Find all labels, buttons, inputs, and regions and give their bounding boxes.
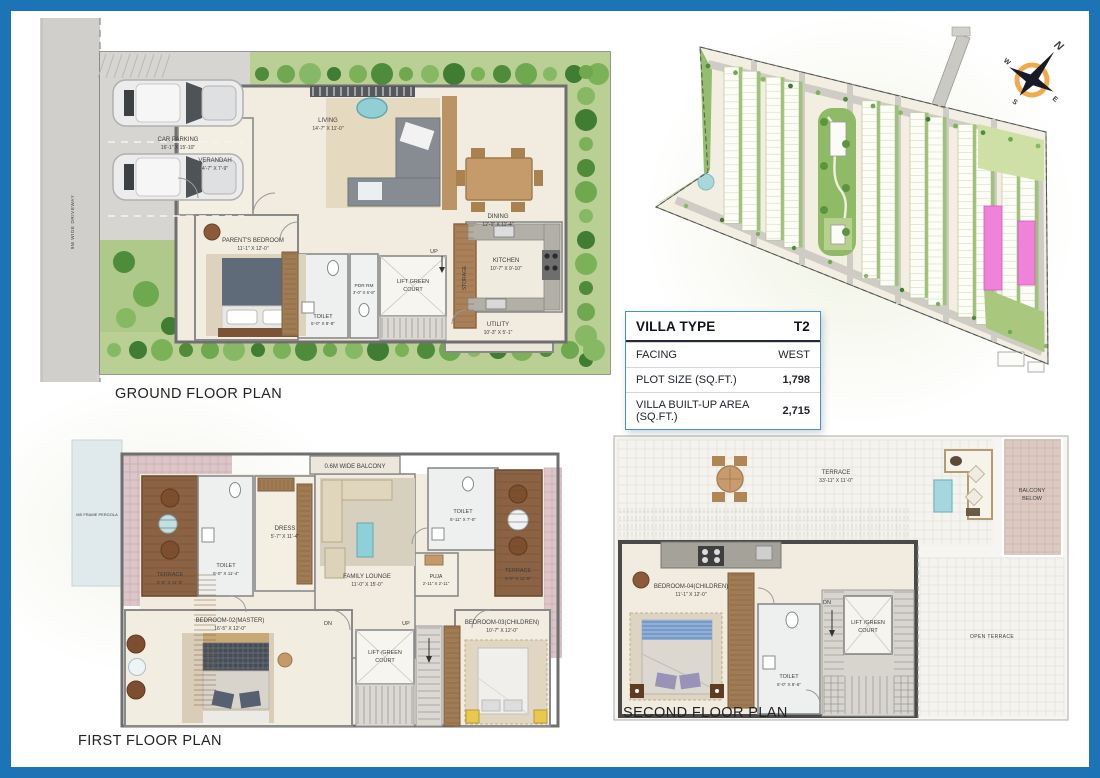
villa-type-value: T2: [794, 319, 810, 334]
toilet-left-label: TOILET: [216, 563, 236, 569]
compass-east: E: [1051, 95, 1059, 104]
terrace-right-dims: 5'-0" X 11'-8": [505, 576, 531, 581]
car-parking-dims: 16'-1" X 15'-10": [161, 145, 196, 151]
coffee-table: [357, 98, 387, 118]
first-floor-plan: MS FRAME PERGOLA 0.6M WIDE BALCONY TERRA…: [70, 428, 575, 750]
tree-icon: [443, 63, 465, 85]
plot-column: [862, 101, 877, 279]
tree-icon: [583, 339, 605, 361]
tree-icon: [900, 288, 904, 292]
tree-icon: [151, 339, 173, 361]
table-row: FACING WEST: [626, 342, 820, 367]
pdr-room: [350, 254, 378, 338]
terrace-left-furniture: [159, 489, 179, 559]
tree-icon: [820, 162, 828, 170]
family-lounge-dims: 11'-0" X 15'-0": [351, 582, 382, 588]
tree-icon: [371, 63, 393, 85]
table-row: VILLA BUILT-UP AREA (SQ.FT.) 2,715: [626, 392, 820, 429]
tree-icon: [133, 281, 159, 307]
tree-icon: [577, 231, 595, 249]
terrace-right-label: TERRACE: [505, 568, 532, 574]
tree-icon: [1036, 144, 1041, 149]
plot-column: [766, 77, 781, 240]
tree-icon: [349, 65, 367, 83]
staircase: [356, 684, 414, 726]
lift-court-label: LIFT GREEN: [397, 279, 429, 285]
utility-label: UTILITY: [487, 322, 509, 328]
ground-floor-drawing: CAR PARKING 16'-1" X 15'-10" 9M WIDE DRI…: [28, 10, 618, 390]
chair: [204, 224, 220, 240]
terrace-dims: 33'-11" X 11'-0": [819, 478, 853, 484]
tree-icon: [577, 303, 595, 321]
tree-icon: [345, 341, 363, 359]
tree-icon: [1008, 137, 1013, 142]
tree-icon: [864, 274, 868, 278]
car-parking-label: CAR PARKING: [158, 137, 199, 143]
parents-bedroom-dims: 11'-1" X 12'-0": [237, 246, 268, 252]
tree-icon: [579, 65, 593, 79]
tree-icon: [201, 341, 219, 359]
dn-label: DN: [324, 621, 332, 627]
side-table: [278, 653, 292, 667]
pdr-label: PDR RM: [355, 283, 374, 289]
bedroom4-dims: 11'-1" X 12'-0": [675, 592, 706, 598]
lift-court-label2: COURT: [403, 287, 423, 293]
plot-column: [742, 71, 757, 230]
basin: [763, 656, 775, 669]
compass-icon: N E S W: [985, 22, 1082, 125]
compass-south: S: [1010, 98, 1018, 107]
tree-icon: [327, 67, 341, 81]
tree-icon: [323, 343, 337, 357]
tree-icon: [972, 316, 976, 320]
tree-icon: [399, 67, 413, 81]
terrace-left-dims: 5'-6" X 11'-8": [157, 580, 183, 585]
decor: [757, 71, 761, 230]
tree-icon: [733, 70, 738, 75]
first-floor-title: FIRST FLOOR PLAN: [78, 733, 222, 749]
pillow: [482, 700, 500, 711]
nightstand: [534, 710, 547, 723]
toilet-left-dims: 5'-0" X 11'-4": [213, 571, 239, 576]
table: [159, 515, 177, 533]
pillow: [504, 700, 522, 711]
puja-dims: 2'-11" X 2'-11": [423, 581, 450, 586]
pergola-strip: [310, 86, 415, 97]
kitchen-label: KITCHEN: [493, 258, 519, 264]
tree-icon: [936, 302, 940, 306]
verandah-label: VERANDAH: [198, 158, 231, 164]
pond: [698, 174, 714, 190]
amenity-block: [998, 352, 1024, 366]
first-floor-drawing: MS FRAME PERGOLA 0.6M WIDE BALCONY TERRA…: [70, 428, 575, 750]
chair: [127, 635, 145, 653]
nightstand: [466, 710, 479, 723]
toilet-label: TOILET: [313, 314, 333, 320]
plot-column: [880, 105, 895, 286]
villa-type-table: VILLA TYPE T2 FACING WEST PLOT SIZE (SQ.…: [625, 311, 821, 430]
sink: [486, 299, 506, 309]
toilet-label: TOILET: [779, 674, 799, 680]
center-table: [357, 523, 373, 557]
second-floor-title: SECOND FLOOR PLAN: [623, 705, 788, 721]
tree-icon: [820, 206, 828, 214]
tree-icon: [579, 209, 593, 223]
planter: [934, 480, 952, 512]
tree-icon: [843, 97, 848, 102]
tree-icon: [816, 90, 821, 95]
basin: [302, 302, 314, 313]
clubhouse: [830, 122, 846, 156]
pillow: [227, 310, 257, 324]
tree-icon: [828, 260, 832, 264]
stove: [698, 546, 724, 566]
bedroom3-furniture: [465, 640, 547, 724]
lift-court-label2: COURT: [858, 628, 878, 634]
tree-icon: [842, 184, 850, 192]
second-floor-plan: TERRACE 33'-11" X 11'-0" BALCONY BELOW B…: [606, 428, 1080, 728]
tree-icon: [756, 232, 760, 236]
basin: [950, 456, 962, 466]
pillow: [679, 673, 701, 690]
lounge-chair: [325, 548, 345, 578]
tree-icon: [395, 343, 409, 357]
basin: [202, 528, 214, 542]
living-furniture: [326, 96, 457, 210]
puja-label: PUJA: [430, 574, 443, 580]
balcony-below-label: BALCONY: [1019, 488, 1046, 494]
kitchen-dims: 10'-7" X 9'-10": [490, 266, 522, 272]
bedroom4-label: BEDROOM-04(CHILDREN): [654, 584, 728, 590]
bedroom3-dims: 10'-7" X 12'-0": [486, 628, 518, 634]
dn-label: DN: [823, 600, 831, 606]
pdr-dims: 3'-0" X 6'-8": [353, 290, 376, 295]
compass-west: W: [1002, 57, 1012, 67]
chair: [712, 456, 725, 466]
car: [113, 80, 243, 126]
tree-icon: [515, 63, 537, 85]
amenity-block: [1028, 362, 1044, 372]
toilet-right-label: TOILET: [453, 509, 473, 515]
tree-icon: [871, 104, 876, 109]
lift-court-label: LIFT /GREEN: [368, 650, 402, 656]
tree-icon: [577, 87, 595, 105]
tree-icon: [577, 159, 595, 177]
dining-label: DINING: [488, 214, 509, 220]
tree-icon: [561, 341, 579, 359]
open-terrace-label: OPEN TERRACE: [970, 634, 1014, 640]
wc: [359, 304, 369, 317]
toilet-dims: 5'-0" X 8'-8": [311, 321, 335, 326]
dining-table: [466, 158, 532, 200]
tree-icon: [926, 117, 931, 122]
tree-icon: [116, 308, 136, 328]
tree-icon: [129, 341, 147, 359]
table: [508, 510, 528, 530]
bedroom3-label: BEDROOM-03(CHILDREN): [465, 620, 539, 626]
plot-column: [958, 124, 973, 317]
tree-icon: [299, 63, 321, 85]
lift-court-label: LIFT /GREEN: [851, 620, 885, 626]
tree-icon: [277, 65, 295, 83]
tree-icon: [842, 140, 850, 148]
tree-icon: [113, 251, 135, 273]
up-label: UP: [402, 621, 410, 627]
tree-icon: [273, 341, 291, 359]
tree-icon: [493, 65, 511, 83]
ground-floor-plan: CAR PARKING 16'-1" X 15'-10" 9M WIDE DRI…: [28, 10, 618, 390]
tree-icon: [706, 64, 711, 69]
tree-icon: [842, 228, 850, 236]
tree-icon: [255, 67, 269, 81]
tree-icon: [761, 77, 766, 82]
chair: [127, 681, 145, 699]
tree-icon: [953, 124, 958, 129]
pillow: [239, 691, 261, 709]
chair: [509, 485, 527, 503]
storage-label: STORAGE: [462, 265, 468, 290]
balcony-label: 0.6M WIDE BALCONY: [324, 464, 385, 470]
tree-icon: [107, 343, 121, 357]
tree-icon: [792, 246, 796, 250]
terrace-right-furniture: [508, 485, 528, 555]
wc: [463, 477, 474, 491]
compass-north: N: [1052, 39, 1066, 54]
tree-icon: [684, 204, 688, 208]
tree-icon: [820, 118, 828, 126]
wardrobe: [297, 484, 312, 584]
toilet-right-dims: 5'-11" X 7'-5": [450, 517, 476, 522]
tree-icon: [417, 341, 435, 359]
family-lounge-label: FAMILY LOUNGE: [343, 574, 391, 580]
facing-label: FACING: [636, 349, 677, 361]
table-row: PLOT SIZE (SQ.FT.) 1,798: [626, 367, 820, 392]
windshield: [186, 82, 202, 124]
tree-icon: [543, 67, 557, 81]
plot-size-label: PLOT SIZE (SQ.FT.): [636, 374, 737, 386]
wc: [328, 261, 339, 276]
second-floor-drawing: TERRACE 33'-11" X 11'-0" BALCONY BELOW B…: [606, 428, 1080, 728]
driveway-label: 9M WIDE DRIVEWAY: [70, 195, 75, 250]
terrace-label: TERRACE: [822, 470, 851, 476]
tree-icon: [1008, 330, 1012, 334]
toilet-dims: 5'-0" X 8'-6": [777, 682, 801, 687]
table: [633, 572, 649, 588]
lift-court-label2: COURT: [375, 658, 395, 664]
sink: [756, 546, 772, 560]
terrace-left-label: TERRACE: [157, 572, 184, 578]
verandah-dims: 4'-7" X 7'-9": [202, 166, 228, 172]
tree-icon: [898, 110, 903, 115]
tree-icon: [471, 67, 485, 81]
decor: [943, 117, 947, 305]
lounge-furniture: [320, 478, 415, 578]
plot-column: [784, 82, 799, 248]
builtup-value: 2,715: [782, 405, 810, 417]
decor: [799, 82, 803, 248]
ground-floor-title: GROUND FLOOR PLAN: [115, 386, 282, 402]
cushion: [358, 182, 382, 200]
dining-dims: 12'-9" X 11'-4": [482, 222, 513, 228]
bedroom2-label: BEDROOM-02(MASTER): [196, 618, 265, 624]
chair: [471, 148, 485, 158]
tree-icon: [575, 181, 597, 203]
up-label: UP: [430, 249, 438, 255]
basin: [432, 528, 444, 540]
tree-icon: [579, 137, 593, 151]
tree-icon: [251, 343, 265, 357]
bedroom2-dims: 16'-5" X 12'-0": [214, 626, 246, 632]
tree-icon: [575, 109, 597, 131]
tree-icon: [421, 65, 439, 83]
wardrobe: [728, 573, 754, 708]
villa-table-header: VILLA TYPE T2: [626, 312, 820, 342]
wardrobe: [444, 626, 460, 726]
utility-dims: 10'-3" X 5'-1": [484, 330, 513, 336]
parents-bedroom-label: PARENT'S BEDROOM: [222, 238, 284, 244]
wc: [230, 483, 241, 498]
pergola-label: MS FRAME PERGOLA: [76, 512, 118, 517]
living-label: LIVING: [318, 118, 338, 124]
puja-shrine: [425, 555, 443, 565]
wc: [786, 612, 798, 628]
tree-icon: [579, 281, 593, 295]
tree-icon: [720, 218, 724, 222]
living-dims: 14'-7" X 11'-0": [312, 126, 343, 132]
headboard: [203, 633, 269, 643]
tree-icon: [575, 253, 597, 275]
tree-icon: [981, 130, 986, 135]
tree-icon: [788, 84, 793, 89]
facing-value: WEST: [778, 349, 810, 361]
decor: [895, 105, 899, 286]
builtup-label: VILLA BUILT-UP AREA (SQ.FT.): [636, 399, 782, 423]
dress-dims: 5'-7" X 11'-4": [271, 534, 300, 540]
villa-type-label: VILLA TYPE: [636, 319, 716, 334]
table: [129, 659, 146, 676]
entry-road: [932, 34, 970, 108]
stove: [542, 250, 560, 280]
dress-label: DRESS: [275, 526, 296, 532]
plot-size-value: 1,798: [782, 374, 810, 386]
balcony-below-label2: BELOW: [1022, 496, 1043, 502]
tree-icon: [179, 343, 193, 357]
